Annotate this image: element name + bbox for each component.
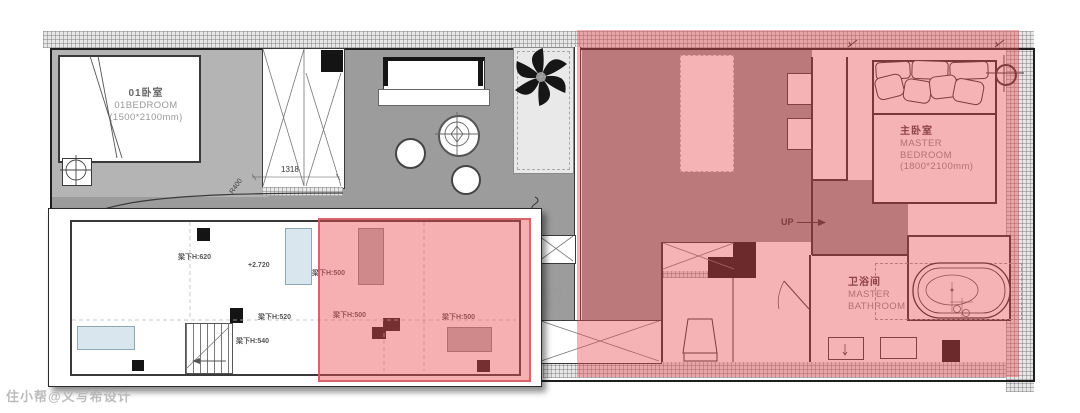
- inset-level: +2.720: [248, 262, 270, 269]
- bedroom01-name-zh: 01卧室: [96, 87, 196, 100]
- inset-column-2: [230, 308, 243, 323]
- stool-2: [451, 165, 481, 195]
- coffee-table: [438, 115, 480, 157]
- dim-1318: 1318: [281, 165, 299, 174]
- inset-window-2: [77, 326, 135, 350]
- balcony-inner-dash: [517, 51, 570, 170]
- inset-window-1: [285, 228, 312, 285]
- watermark: 住小帮@义写希设计: [6, 386, 132, 405]
- sofa-seat: [378, 89, 490, 106]
- bedroom01-name-en: 01BEDROOM: [96, 100, 196, 112]
- wardrobe-column: [321, 50, 343, 72]
- inset-beam-520: 梁下H:520: [258, 312, 291, 322]
- stool-1: [395, 138, 426, 169]
- inset-stairs: [185, 323, 233, 374]
- nightstand: [62, 158, 92, 186]
- inset-column-1: [197, 228, 210, 241]
- inset-beam-540: 梁下H:540: [236, 336, 269, 346]
- wardrobe-base-hatch: [262, 187, 343, 196]
- inset-beam-620: 梁下H:620: [178, 252, 211, 262]
- inset-column-3: [132, 360, 144, 371]
- bedroom01-size: (1500*2100mm): [96, 112, 196, 124]
- highlight-overlay-main: [577, 30, 1019, 377]
- balcony-daybed: [513, 47, 574, 174]
- highlight-overlay-inset: [318, 218, 531, 382]
- bedroom01-label: 01卧室 01BEDROOM (1500*2100mm): [96, 87, 196, 123]
- closet-panel-upper: [538, 235, 576, 264]
- floor-plan-canvas: 01卧室 01BEDROOM (1500*2100mm) 1318 R400 W…: [0, 0, 1080, 413]
